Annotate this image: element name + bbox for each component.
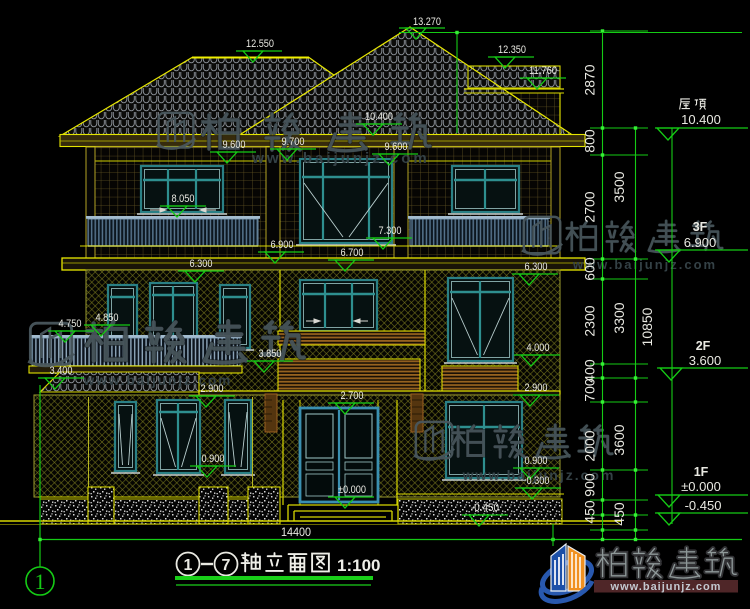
svg-text:9.700: 9.700 (282, 136, 305, 148)
svg-text:12.550: 12.550 (246, 38, 274, 50)
svg-text:-0.450: -0.450 (471, 502, 499, 514)
svg-text:±0.000: ±0.000 (681, 479, 721, 494)
svg-text:0.900: 0.900 (202, 453, 225, 465)
svg-text:1: 1 (184, 557, 193, 574)
svg-text:6.900: 6.900 (271, 239, 294, 251)
svg-text:600: 600 (582, 257, 598, 281)
svg-text:±0.000: ±0.000 (338, 484, 366, 496)
svg-text:1: 1 (35, 569, 46, 594)
svg-text:3F: 3F (693, 220, 708, 234)
svg-text:www.baijunjz.com: www.baijunjz.com (610, 581, 722, 593)
svg-text:3.600: 3.600 (689, 353, 722, 368)
svg-text:4.000: 4.000 (527, 342, 550, 354)
svg-text:6.300: 6.300 (525, 261, 548, 273)
svg-text:2300: 2300 (582, 305, 598, 336)
svg-text:2000: 2000 (582, 430, 598, 461)
svg-text:3600: 3600 (611, 424, 627, 455)
svg-text:13.270: 13.270 (413, 16, 441, 28)
svg-text:6.300: 6.300 (190, 258, 213, 270)
svg-text:-0.450: -0.450 (685, 498, 722, 513)
svg-text:10850: 10850 (639, 307, 655, 346)
svg-text:0.300: 0.300 (527, 475, 550, 487)
svg-text:450: 450 (611, 502, 627, 526)
svg-text:4.850: 4.850 (96, 312, 119, 324)
svg-text:3.850: 3.850 (259, 348, 282, 360)
svg-text:2.700: 2.700 (341, 390, 364, 402)
svg-text:0.900: 0.900 (525, 455, 548, 467)
svg-text:8.050: 8.050 (172, 193, 195, 205)
svg-text:1F: 1F (694, 465, 709, 479)
svg-text:4.750: 4.750 (59, 318, 82, 330)
svg-text:2F: 2F (696, 339, 711, 353)
svg-text:1:100: 1:100 (337, 556, 380, 575)
svg-text:450: 450 (582, 500, 598, 524)
svg-text:2.900: 2.900 (201, 383, 224, 395)
svg-text:3.400: 3.400 (50, 365, 73, 377)
svg-text:2870: 2870 (582, 64, 598, 95)
svg-text:7.300: 7.300 (379, 225, 402, 237)
svg-text:3300: 3300 (611, 302, 627, 333)
svg-text:2.900: 2.900 (525, 382, 548, 394)
svg-text:11.760: 11.760 (529, 65, 557, 77)
svg-text:7: 7 (222, 557, 231, 574)
svg-text:800: 800 (582, 129, 598, 153)
svg-text:12.350: 12.350 (498, 44, 526, 56)
svg-text:9.600: 9.600 (385, 141, 408, 153)
svg-text:6.900: 6.900 (684, 235, 717, 250)
svg-text:9.600: 9.600 (223, 139, 246, 151)
svg-text:6.700: 6.700 (341, 247, 364, 259)
svg-text:3500: 3500 (611, 171, 627, 202)
svg-text:700: 700 (582, 378, 598, 402)
svg-text:900: 900 (582, 473, 598, 497)
svg-text:10.400: 10.400 (365, 111, 393, 123)
svg-text:14400: 14400 (281, 525, 311, 539)
svg-text:10.400: 10.400 (681, 112, 721, 127)
svg-text:2700: 2700 (582, 191, 598, 222)
